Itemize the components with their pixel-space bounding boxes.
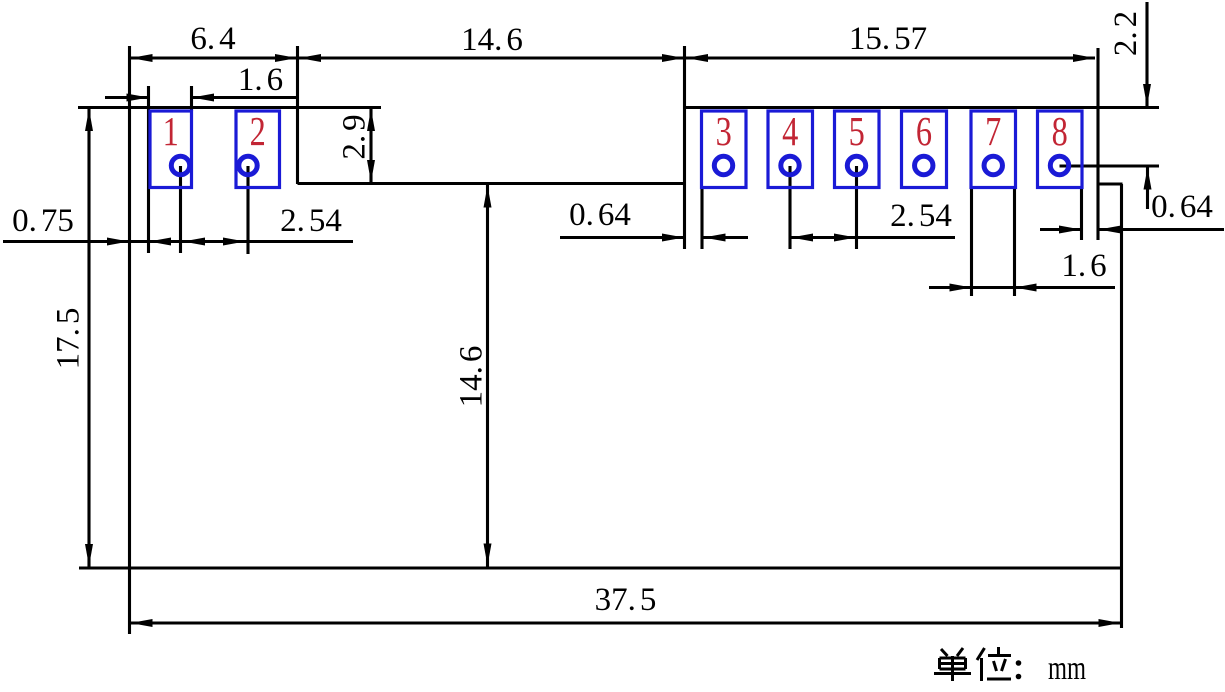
svg-text:2.54: 2.54: [890, 198, 952, 234]
svg-text:2: 2: [250, 109, 266, 155]
svg-text:4: 4: [782, 109, 799, 155]
svg-text:14.6: 14.6: [461, 22, 523, 58]
svg-text:6: 6: [916, 109, 932, 155]
svg-text:8: 8: [1052, 109, 1068, 155]
svg-text:3: 3: [716, 109, 732, 155]
svg-text:2.2: 2.2: [1108, 11, 1144, 56]
svg-text:0.75: 0.75: [12, 203, 74, 239]
svg-text:0.64: 0.64: [569, 197, 631, 233]
svg-text:2.54: 2.54: [280, 203, 342, 239]
svg-text:0.64: 0.64: [1151, 189, 1213, 225]
svg-text:2.9: 2.9: [337, 114, 373, 159]
svg-text:14.6: 14.6: [454, 346, 490, 408]
svg-text:1.6: 1.6: [1061, 248, 1106, 284]
svg-text:5: 5: [849, 109, 865, 155]
svg-text:mm: mm: [1048, 650, 1086, 687]
svg-text:15.57: 15.57: [849, 21, 927, 57]
svg-text:1.6: 1.6: [238, 62, 283, 98]
svg-text:1: 1: [163, 109, 179, 155]
svg-text:6.4: 6.4: [190, 21, 235, 57]
svg-text:7: 7: [985, 109, 1001, 155]
svg-text:37.5: 37.5: [595, 582, 657, 618]
svg-text:17.5: 17.5: [51, 308, 87, 370]
